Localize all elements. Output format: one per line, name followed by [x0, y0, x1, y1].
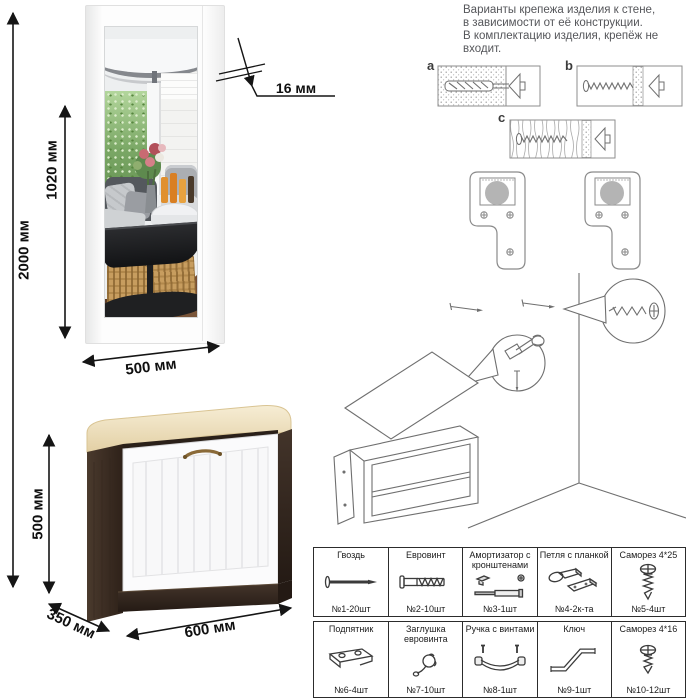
hardware-name: Заглушка евровинта — [390, 624, 461, 644]
hardware-qty: №6-4шт — [334, 685, 368, 695]
hardware-cell-screw-4x25: Саморез 4*25 №5-4шт — [611, 548, 685, 616]
hinge-icon — [543, 566, 605, 598]
hardware-qty: №3-1шт — [483, 604, 517, 614]
hanging-brackets — [455, 168, 655, 280]
hardware-table-row-2: Подпятник №6-4шт Заглушка евровинта — [313, 621, 686, 698]
reflection-bottle — [188, 176, 194, 203]
key-icon — [543, 643, 605, 677]
reflection-bottle — [161, 177, 168, 203]
hardware-name: Ключ — [563, 624, 585, 634]
bench-height-label: 500 мм — [30, 488, 47, 539]
mirror-frame-edge — [202, 6, 203, 341]
hardware-cell-key: Ключ №9-1шт — [537, 622, 611, 697]
nails — [450, 300, 555, 313]
hardware-cell-cap: Заглушка евровинта №7-10шт — [388, 622, 462, 697]
instruction-line: Варианты крепежа изделия к стене, — [463, 4, 685, 17]
screw-icon — [617, 644, 679, 676]
total-height-label: 2000 мм — [16, 220, 33, 280]
mirror-height-label: 1020 мм — [44, 140, 61, 200]
variant-a-diagram — [438, 66, 540, 106]
hardware-name: Ручка с винтами — [466, 624, 535, 634]
reflection-roman-shade — [161, 73, 197, 99]
reflection-coffee-table — [104, 222, 198, 269]
reflection-bottle — [170, 173, 177, 203]
variant-c-diagram — [510, 120, 615, 158]
assembly-diagram — [320, 265, 686, 545]
mirror-image — [85, 5, 225, 344]
hanging-bracket — [470, 172, 525, 269]
hardware-name: Амортизатор с кронштенами — [464, 550, 535, 570]
hardware-name: Подпятник — [329, 624, 373, 634]
hardware-name: Саморез 4*16 — [620, 624, 678, 634]
total-height-arrow — [6, 6, 20, 594]
hardware-qty: №8-1шт — [483, 685, 517, 695]
instruction-line: входит. — [463, 43, 685, 56]
gas-lift-icon — [469, 573, 531, 601]
hardware-cell-nail: Гвоздь №1-20шт — [314, 548, 388, 616]
hardware-table-row-1: Гвоздь №1-20шт Евровинт №2-10шт Амортиза… — [313, 547, 686, 617]
mounting-instructions: Варианты крепежа изделия к стене, в зави… — [463, 4, 685, 56]
mirror-thickness-label: 16 мм — [276, 80, 316, 96]
hardware-qty: №5-4шт — [631, 604, 665, 614]
bench-side-right — [278, 429, 292, 584]
mirror-reflection — [104, 26, 198, 318]
hardware-cell-gas-lift: Амортизатор с кронштенами №3-1шт — [462, 548, 536, 616]
hardware-name: Гвоздь — [337, 550, 365, 560]
instruction-line: в зависимости от её конструкции. — [463, 17, 685, 30]
hardware-qty: №4-2к-та — [555, 604, 594, 614]
euroscrew-icon — [395, 569, 457, 595]
hardware-cell-glide: Подпятник №6-4шт — [314, 622, 388, 697]
hardware-cell-hinge: Петля с планкой №4-2к-та — [537, 548, 611, 616]
hardware-qty: №1-20шт — [332, 604, 371, 614]
cabinet-carcass — [334, 426, 478, 524]
hardware-qty: №2-10шт — [406, 604, 445, 614]
variant-b-diagram — [577, 66, 682, 106]
hardware-qty: №9-1шт — [557, 685, 591, 695]
mirror-height-arrow — [58, 100, 72, 344]
nail-icon — [320, 569, 382, 595]
glide-icon — [320, 645, 382, 675]
hardware-qty: №7-10шт — [406, 685, 445, 695]
cap-icon — [395, 651, 457, 679]
hardware-cell-screw-4x16: Саморез 4*16 №10-12шт — [611, 622, 685, 697]
instruction-line: В комплектацию изделия, крепёж не — [463, 30, 685, 43]
hardware-name: Евровинт — [406, 550, 446, 560]
fastener-variants-diagram — [425, 56, 686, 164]
hardware-qty: №10-12шт — [626, 685, 670, 695]
hardware-cell-handle: Ручка с винтами №8-1шт — [462, 622, 536, 697]
hardware-cell-euroscrew: Евровинт №2-10шт — [388, 548, 462, 616]
hardware-name: Петля с планкой — [540, 550, 609, 560]
furniture-dimension-sheet: 2000 мм — [0, 0, 686, 700]
hardware-name: Саморез 4*25 — [620, 550, 678, 560]
screw-icon — [617, 563, 679, 601]
reflection-bottle — [179, 179, 186, 203]
handle-icon — [469, 643, 531, 677]
